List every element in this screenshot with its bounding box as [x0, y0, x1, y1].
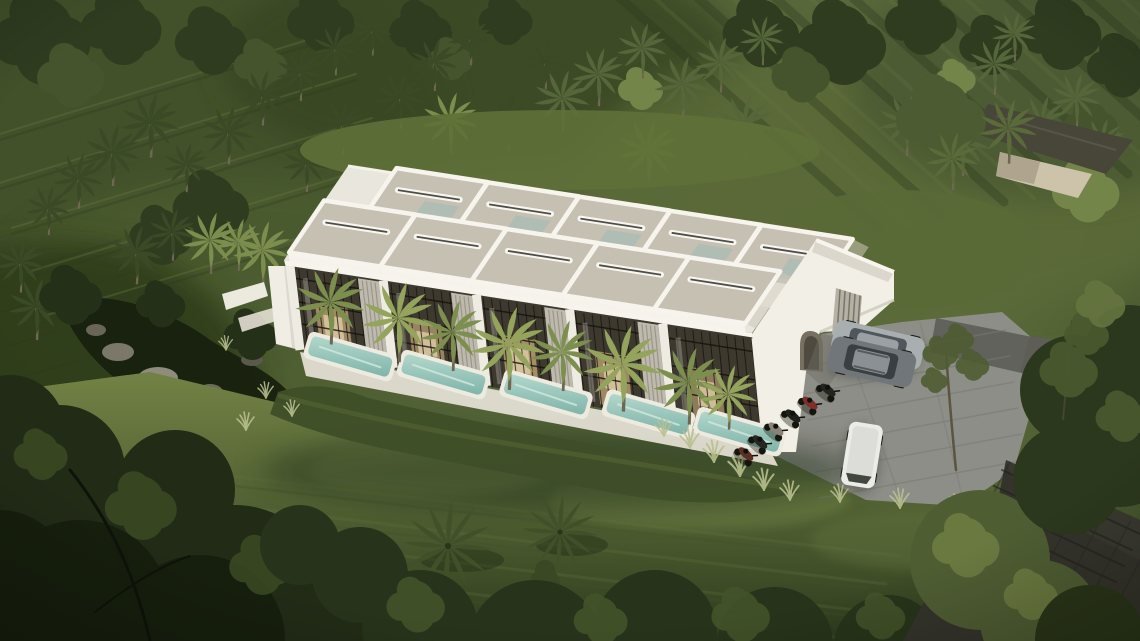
aerial-photo [0, 0, 1140, 641]
vignette [0, 0, 1140, 641]
scene-root [0, 0, 1140, 641]
scene-svg [0, 0, 1140, 641]
